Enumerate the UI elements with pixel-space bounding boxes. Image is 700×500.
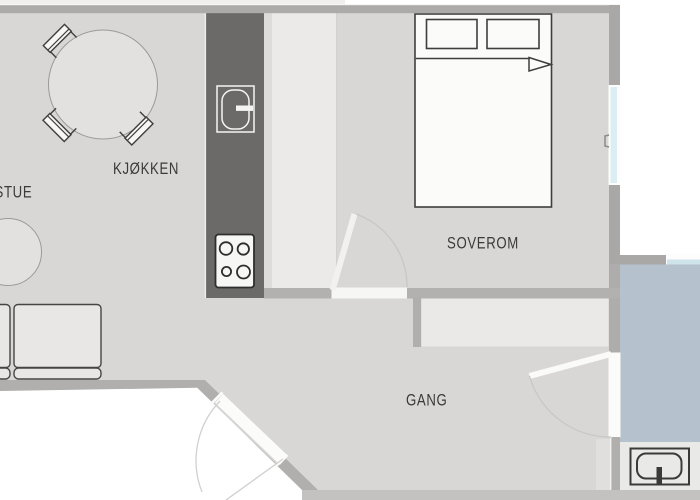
svg-text:SOVEROM: SOVEROM (447, 234, 519, 253)
svg-text:GANG: GANG (406, 391, 447, 410)
svg-text:KJØKKEN: KJØKKEN (113, 160, 179, 179)
svg-text:STUE: STUE (0, 183, 32, 202)
